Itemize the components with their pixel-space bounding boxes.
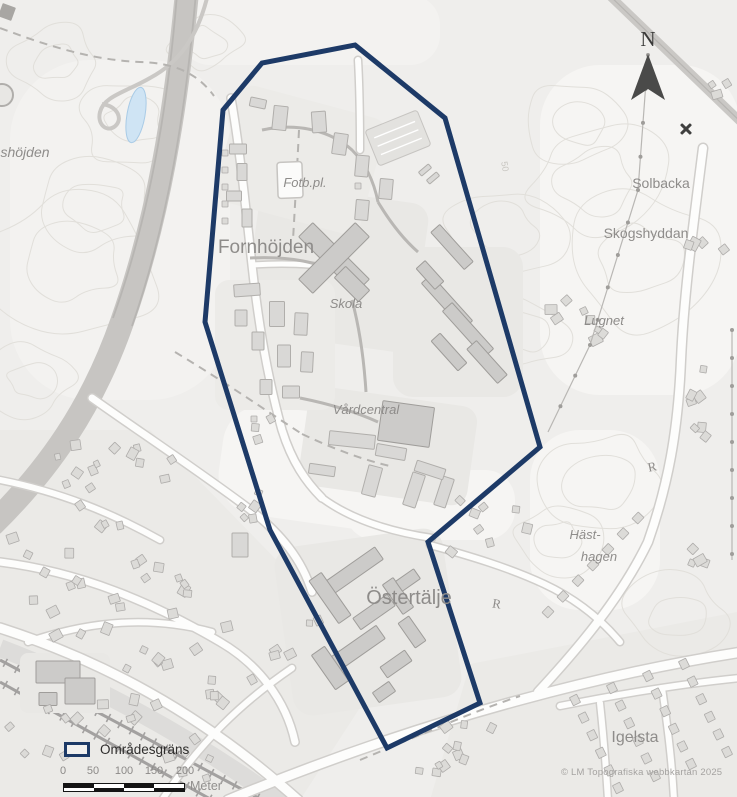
building bbox=[242, 209, 252, 227]
house bbox=[222, 218, 228, 224]
house bbox=[54, 453, 60, 460]
house bbox=[135, 458, 144, 467]
power-pole-dot bbox=[641, 121, 645, 125]
power-pole-dot bbox=[730, 356, 734, 360]
building bbox=[311, 111, 326, 133]
map-label-skogshyddan: Skogshyddan bbox=[604, 225, 689, 241]
power-pole-dot bbox=[606, 285, 610, 289]
house bbox=[512, 506, 520, 514]
building bbox=[252, 332, 264, 350]
house bbox=[183, 590, 192, 598]
map-label-h-st-: Häst- bbox=[569, 527, 601, 542]
house bbox=[700, 365, 708, 373]
building bbox=[294, 313, 308, 336]
map-label-fotb-pl-: Fotb.pl. bbox=[283, 175, 326, 190]
power-pole-dot bbox=[638, 155, 642, 159]
building bbox=[230, 144, 247, 154]
power-pole-dot bbox=[730, 524, 734, 528]
power-pole-dot bbox=[730, 328, 734, 332]
building bbox=[332, 133, 349, 156]
power-pole-dot bbox=[588, 343, 592, 347]
house bbox=[65, 548, 74, 558]
house bbox=[160, 474, 171, 483]
legend: Områdesgräns bbox=[64, 740, 189, 758]
map-label-hagen: hagen bbox=[581, 549, 617, 564]
power-pole-dot bbox=[573, 374, 577, 378]
power-pole-dot bbox=[558, 404, 562, 408]
house bbox=[355, 183, 361, 189]
house bbox=[70, 440, 81, 451]
house bbox=[461, 720, 468, 728]
map-canvas: shöjdenFornhöjdenFotb.pl.SkolaVårdcentra… bbox=[0, 0, 737, 797]
map-label-sh-jden: shöjden bbox=[0, 144, 49, 160]
house bbox=[167, 608, 178, 619]
building bbox=[283, 386, 300, 398]
house bbox=[222, 201, 228, 207]
building bbox=[235, 310, 247, 326]
power-pole-dot bbox=[730, 384, 734, 388]
house bbox=[208, 676, 216, 685]
north-arrow: N bbox=[626, 28, 670, 112]
house bbox=[97, 700, 108, 709]
map-label-igelsta: Igelsta bbox=[611, 729, 658, 746]
house bbox=[177, 767, 187, 778]
power-pole-dot bbox=[730, 552, 734, 556]
house bbox=[116, 521, 124, 530]
house bbox=[453, 741, 462, 751]
building bbox=[355, 199, 370, 220]
power-pole-dot bbox=[730, 440, 734, 444]
building-large bbox=[39, 693, 57, 706]
house bbox=[210, 691, 218, 699]
house bbox=[220, 621, 233, 633]
building bbox=[379, 178, 394, 199]
building bbox=[237, 164, 247, 181]
power-pole-dot bbox=[730, 468, 734, 472]
house bbox=[545, 305, 557, 315]
house bbox=[485, 538, 494, 548]
building bbox=[270, 302, 285, 327]
house bbox=[153, 562, 164, 572]
building bbox=[355, 155, 370, 177]
power-pole-dot bbox=[730, 496, 734, 500]
house bbox=[415, 767, 423, 774]
house bbox=[306, 620, 313, 626]
road bbox=[358, 60, 360, 150]
building bbox=[260, 380, 272, 395]
house bbox=[129, 693, 140, 706]
house bbox=[222, 150, 228, 156]
north-arrow-icon bbox=[631, 54, 665, 100]
north-label: N bbox=[626, 28, 670, 50]
house bbox=[248, 514, 257, 524]
building bbox=[227, 191, 242, 201]
house bbox=[29, 596, 38, 605]
building bbox=[232, 533, 248, 557]
house bbox=[522, 523, 533, 535]
building-large bbox=[65, 678, 95, 704]
map-label-50: 50 bbox=[499, 161, 511, 173]
house bbox=[251, 423, 259, 431]
map-label-v-rdcentral: Vårdcentral bbox=[333, 402, 401, 417]
map-label-lugnet: Lugnet bbox=[584, 313, 625, 328]
house bbox=[251, 416, 257, 422]
map-label-skola: Skola bbox=[330, 296, 363, 311]
building bbox=[278, 345, 291, 367]
map-label--stert-lje: Östertälje bbox=[366, 587, 452, 609]
map-label-fornh-jden: Fornhöjden bbox=[218, 237, 314, 258]
water-tower bbox=[0, 84, 13, 106]
map-figure: shöjdenFornhöjdenFotb.pl.SkolaVårdcentra… bbox=[0, 0, 737, 797]
legend-swatch-omradesgrans bbox=[64, 742, 90, 757]
building bbox=[272, 105, 288, 130]
building bbox=[300, 352, 313, 373]
house bbox=[115, 603, 125, 612]
house bbox=[222, 167, 228, 173]
copyright-note: © LM Topografiska webbkartan 2025 bbox=[561, 767, 722, 778]
legend-label: Områdesgräns bbox=[100, 742, 189, 757]
building bbox=[234, 283, 261, 297]
house bbox=[222, 184, 228, 190]
power-pole-dot bbox=[730, 412, 734, 416]
map-label-solbacka: Solbacka bbox=[632, 175, 690, 191]
power-pole-dot bbox=[626, 220, 630, 224]
power-pole-dot bbox=[616, 253, 620, 257]
